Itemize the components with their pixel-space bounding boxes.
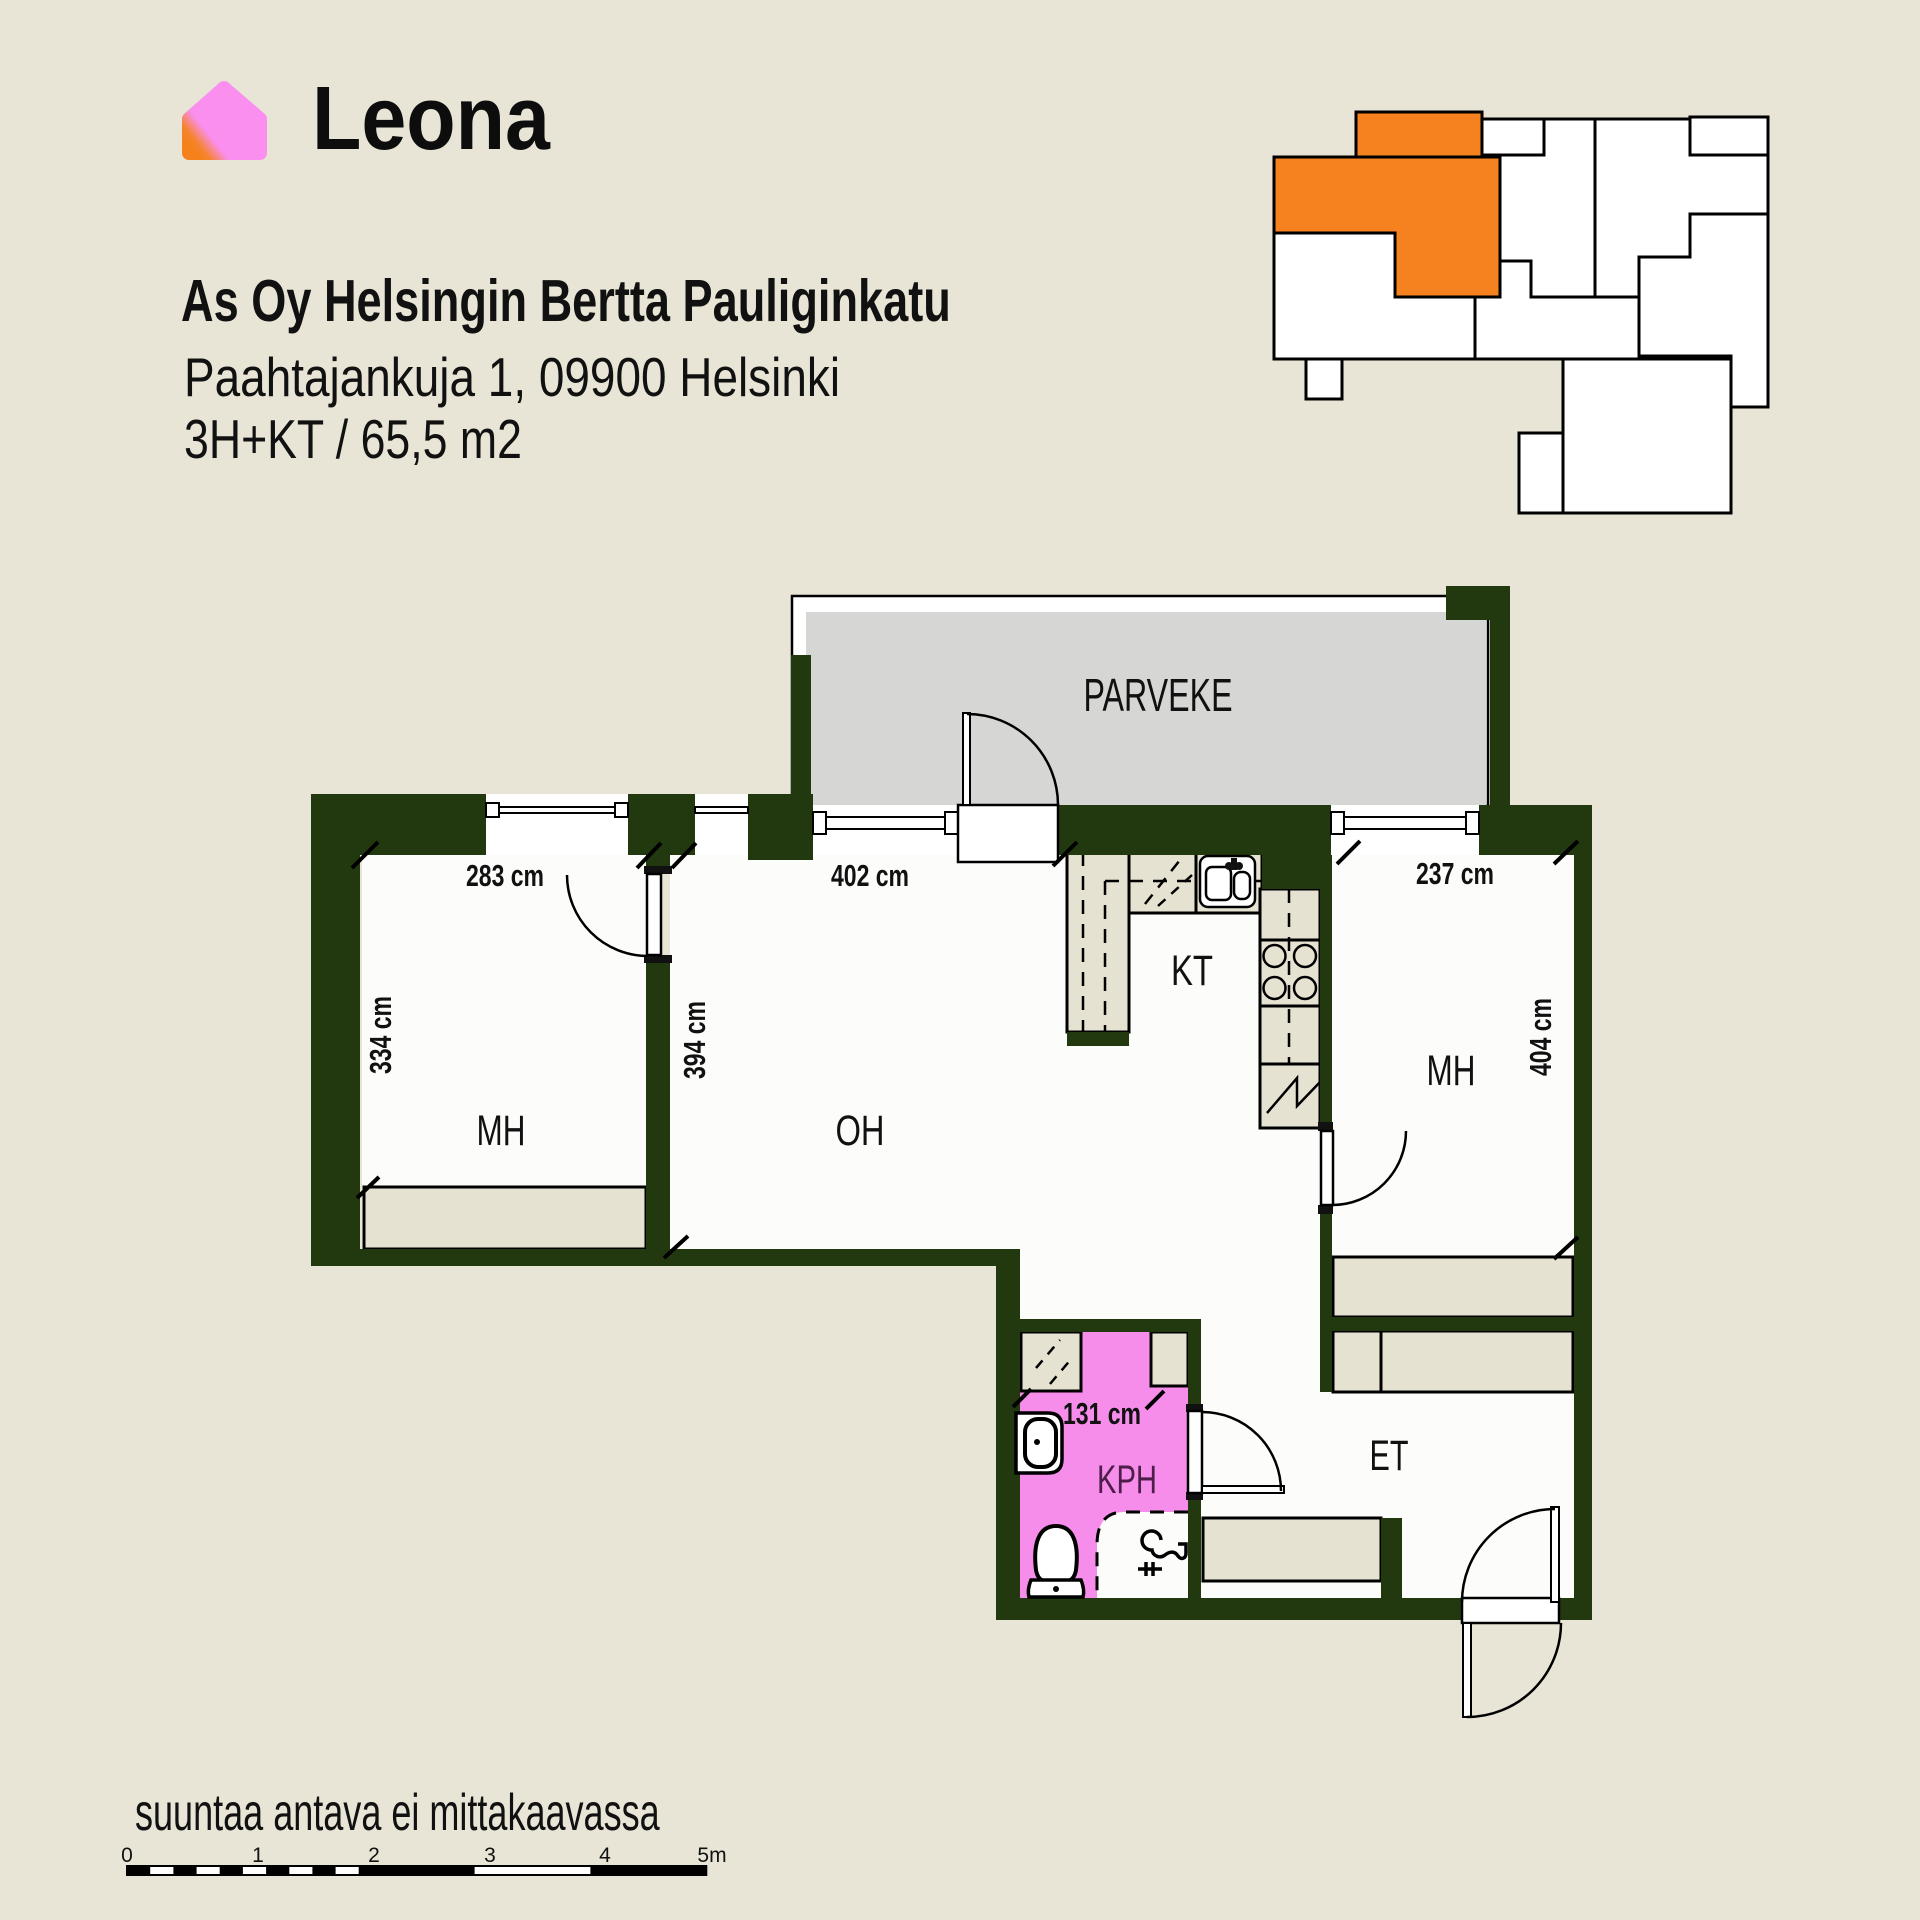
svg-text:394 cm: 394 cm [677, 1001, 712, 1079]
svg-text:4: 4 [599, 1844, 611, 1867]
svg-text:As Oy Helsingin Bertta Pauligi: As Oy Helsingin Bertta Pauliginkatu [181, 268, 951, 334]
svg-text:3: 3 [484, 1844, 496, 1867]
svg-text:334 cm: 334 cm [363, 996, 398, 1074]
svg-text:MH: MH [477, 1106, 526, 1154]
svg-text:PARVEKE: PARVEKE [1083, 670, 1232, 721]
svg-text:OH: OH [835, 1107, 884, 1155]
svg-text:KPH: KPH [1097, 1458, 1157, 1503]
svg-text:1: 1 [252, 1844, 264, 1867]
svg-text:ET: ET [1370, 1431, 1409, 1479]
svg-text:131 cm: 131 cm [1063, 1396, 1141, 1431]
svg-text:0: 0 [121, 1844, 133, 1867]
svg-text:237 cm: 237 cm [1416, 856, 1494, 891]
svg-text:5m: 5m [697, 1844, 726, 1867]
svg-text:402 cm: 402 cm [831, 858, 909, 893]
svg-text:404 cm: 404 cm [1523, 998, 1558, 1076]
svg-text:283 cm: 283 cm [466, 858, 544, 893]
svg-text:Leona: Leona [312, 69, 551, 169]
svg-text:MH: MH [1427, 1046, 1476, 1094]
svg-text:3H+KT / 65,5 m2: 3H+KT / 65,5 m2 [184, 409, 522, 470]
svg-text:Paahtajankuja 1, 09900 Helsink: Paahtajankuja 1, 09900 Helsinki [184, 346, 840, 408]
svg-text:KT: KT [1171, 947, 1213, 995]
svg-text:2: 2 [368, 1844, 380, 1867]
svg-text:suuntaa antava ei mittakaavass: suuntaa antava ei mittakaavassa [135, 1785, 660, 1842]
